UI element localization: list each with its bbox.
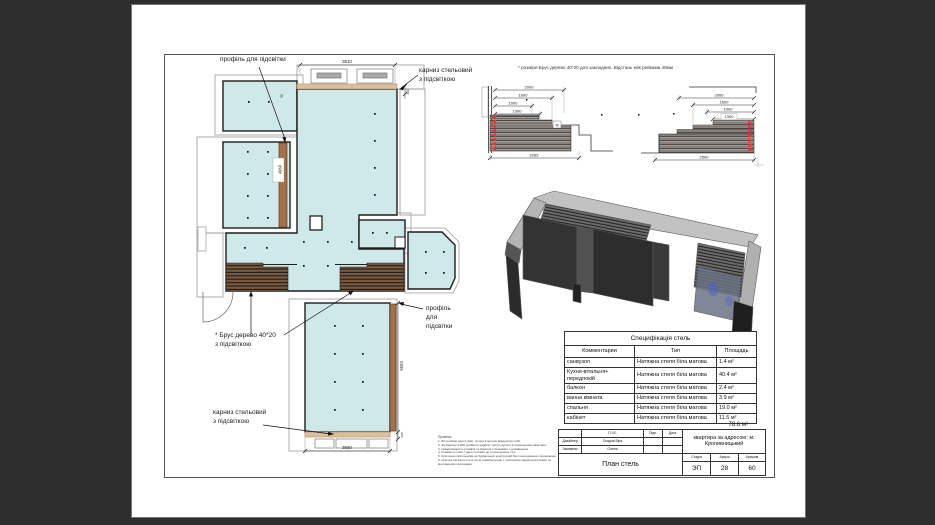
cell-type: Натяжна стеля біла матова (635, 358, 717, 368)
label-brus: * Брус дерево 40*20 з підсвіткою (215, 332, 276, 350)
ceiling-areas (223, 81, 455, 432)
render-shapes (505, 191, 761, 331)
label-line: * Брус дерево 40*20 (215, 332, 276, 341)
table-row: санвузол Натяжна стеля біла матова 1.4 м… (565, 358, 757, 368)
spec-header: Тип (635, 346, 717, 358)
label-profile-right: профіль для підсвітки (426, 305, 452, 331)
dim-text: 1600 (519, 93, 529, 98)
dim-top: 3810 (342, 59, 352, 64)
label-cornice-top: карниз стельовий з підсвіткою (419, 67, 472, 85)
dim-cornice-top: 200 (406, 89, 410, 95)
notes-block: Примітки 1. Всі розміри дані в (мм), пло… (438, 435, 556, 466)
table-row: Кухня-вітальня+ передпокій Натяжна стеля… (565, 368, 757, 384)
label-line: профіль (426, 305, 452, 314)
room-balcony-top (223, 81, 297, 131)
dim-cornice-bottom: 200 (400, 432, 404, 437)
spec-header: Комментарии (565, 346, 635, 358)
dim-text: 1600 (720, 100, 730, 105)
cell-room: Кухня-вітальня+ передпокій (565, 368, 635, 384)
spec-header: Площадь (717, 346, 757, 358)
label-cornice-bottom: карниз стельовий з підсвіткою (213, 409, 266, 427)
dim-text: 2500 (700, 155, 710, 160)
dim-gap: 50 (280, 94, 284, 98)
spec-table: Специфікація стель Комментарии Тип Площа… (564, 331, 757, 424)
table-row: ванна кімната Натяжна стеля біла матова … (565, 394, 757, 404)
room-lower (305, 303, 390, 432)
spec-title: Специфікація стель (565, 332, 757, 346)
cell-area: 2.4 м² (717, 384, 757, 394)
cell-area: 3.9 м² (717, 394, 757, 404)
detail-right: 2000 1600 1000 1300 2500 (641, 87, 764, 167)
dim-text: 1300 (513, 109, 523, 114)
cell-type: Натяжна стеля біла матова (635, 384, 717, 394)
label-line: підсвітки (426, 323, 452, 332)
label-line: з підсвіткою (213, 418, 266, 427)
cell-room: спальня (565, 404, 635, 414)
tb-address-line: Кропивницький (705, 442, 743, 448)
tb-stage-value: ЭП (682, 461, 711, 476)
slat-detail-drawings: 2000 1600 1000 1300 40 2265 (481, 81, 771, 180)
note-line: монтажними приладами. (438, 463, 556, 467)
dim-text: 2000 (525, 85, 535, 90)
ceiling-plan-drawing: 3810 50 4960 200 5503 3560 200 (192, 51, 467, 471)
cell-type: Натяжна стеля біла матова (635, 368, 717, 384)
label-profile-top: профіль для підсвітки (220, 56, 286, 65)
dim-lower-right: 5503 (399, 361, 404, 371)
tb-sheet-value: 28 (710, 461, 739, 476)
room-balcony-right (408, 232, 455, 289)
door-swing (203, 292, 233, 322)
tb-doc-title: План стель (558, 453, 683, 476)
detail-note: * розміри Брус дерево 40*20 для закладни… (518, 65, 673, 70)
column (310, 216, 322, 230)
detail-left: 2000 1600 1000 1300 40 2265 (482, 85, 613, 161)
label-line: з підсвіткою (419, 76, 472, 85)
cell-area: 40.4 м² (717, 368, 757, 384)
tb-address: квартира за адресою: м. Кропивницький (682, 429, 766, 454)
label-line: для (426, 314, 452, 323)
cell-area: 19.0 м² (717, 404, 757, 414)
dim-text: 1000 (509, 101, 519, 106)
spec-total: 78.6 м² (564, 422, 748, 428)
notes-title: Примітки (438, 435, 556, 439)
table-row: спальня Натяжна стеля біла матова 19.0 м… (565, 404, 757, 414)
bath-notch (395, 237, 405, 248)
tb-sheets-value: 60 (738, 461, 766, 476)
dim-text: 2265 (530, 153, 540, 158)
cell-type: Натяжна стеля біла матова (635, 404, 717, 414)
cell-area: 1.4 м² (717, 358, 757, 368)
dim-text: 1000 (724, 107, 734, 112)
label-line: карниз стельовий (419, 67, 472, 76)
drawing-sheet: 3810 50 4960 200 5503 3560 200 профіль д… (131, 4, 806, 518)
cell-type: Натяжна стеля біла матова (635, 394, 717, 404)
table-row: балкон Натяжна стеля біла матова 2.4 м² (565, 384, 757, 394)
cell-room: балкон (565, 384, 635, 394)
dim-bottom: 3560 (342, 445, 352, 450)
title-block: П.І.Б. Підп. Дата Дизайнер Осадча Віра З… (558, 429, 766, 476)
cell-room: санвузол (565, 358, 635, 368)
cell-room: ванна кімната (565, 394, 635, 404)
dim-text: 1300 (725, 114, 735, 119)
label-line: з підсвіткою (215, 341, 276, 350)
gap-text: 40 (555, 123, 559, 127)
ceiling-dots (526, 99, 675, 116)
label-line: карниз стельовий (213, 409, 266, 418)
dim-text: 2000 (715, 93, 725, 98)
dim-left-room: 4960 (278, 164, 283, 174)
ceiling-3d-render (501, 181, 771, 331)
